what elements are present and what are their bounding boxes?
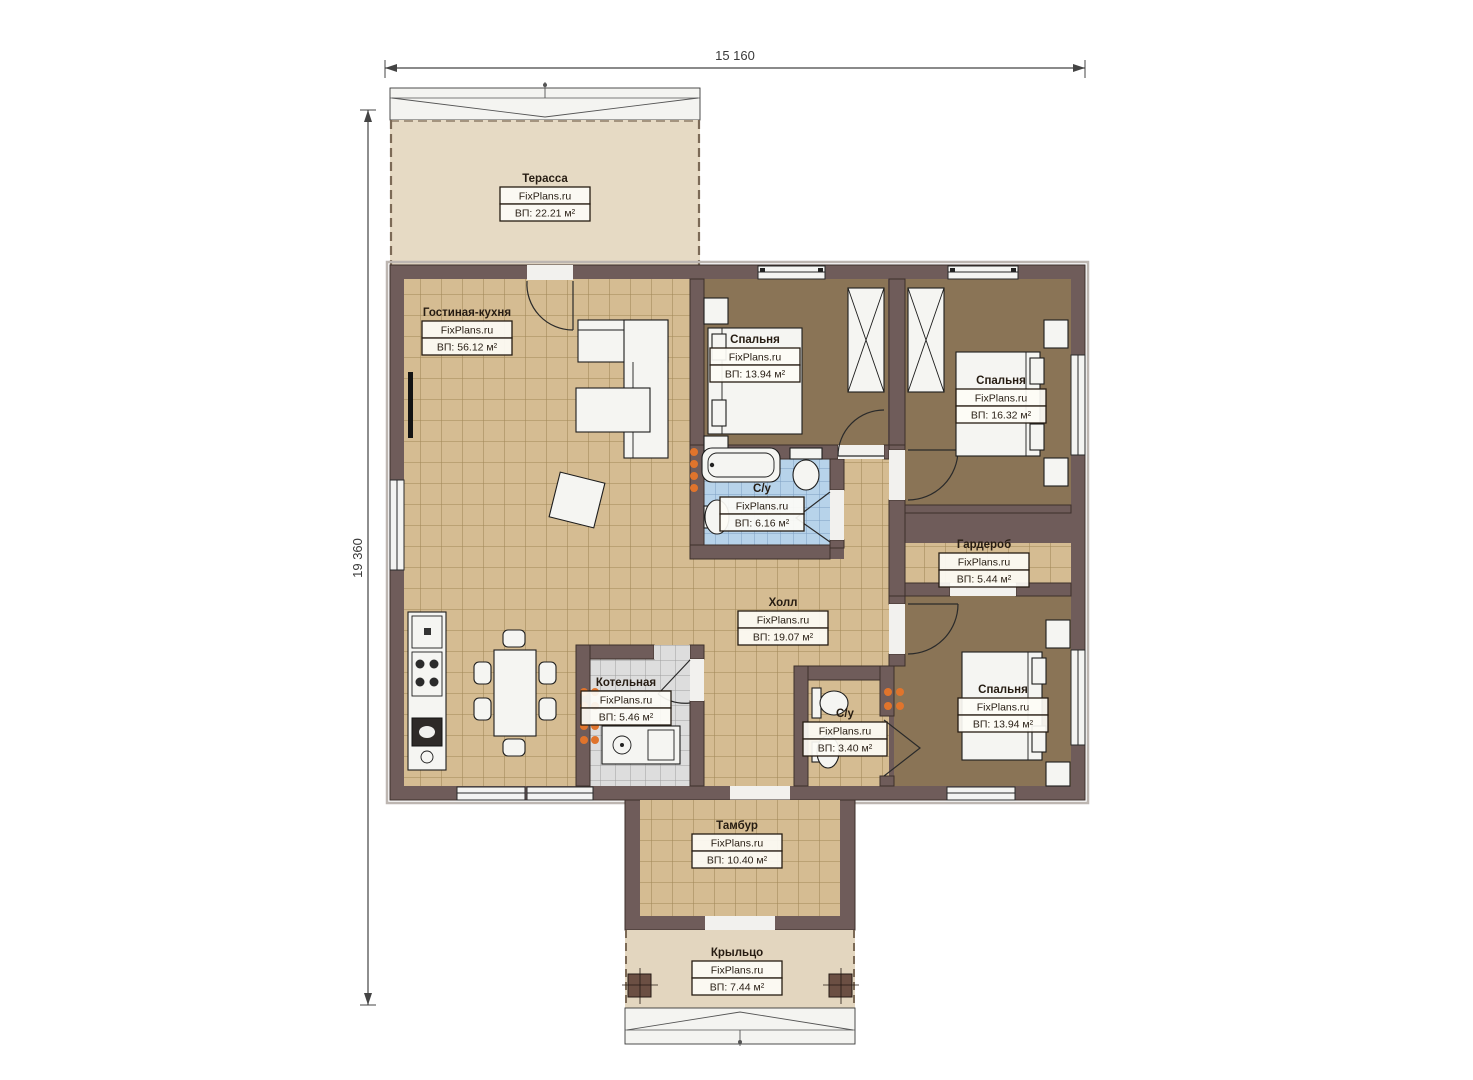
room-watermark: FixPlans.ru [958,557,1011,569]
porch-post [829,974,852,997]
window [948,266,1018,279]
window [947,787,1015,800]
room-watermark: FixPlans.ru [519,191,572,203]
dimension-left: 19 360 [350,110,376,1005]
room-area: ВП: 3.40 м² [818,743,873,755]
floor-plan: 15 160 19 360 [0,0,1473,1080]
room-watermark: FixPlans.ru [711,838,764,850]
room-area: ВП: 13.94 м² [725,369,786,381]
window [758,266,825,279]
bathtub-symbol [702,448,780,482]
window [390,480,404,570]
hall-corridor-floor [844,459,889,559]
floor-plan-page: 15 160 19 360 [0,0,1473,1080]
room-area: ВП: 56.12 м² [437,342,498,354]
boiler-door-gap [654,645,690,659]
room-name: Тамбур [716,820,758,832]
wardrobe-symbol [908,288,944,392]
porch-door-opening [705,916,775,930]
room-name: Котельная [596,677,656,689]
room-area: ВП: 6.16 м² [735,518,790,530]
dimension-height-label: 19 360 [350,538,365,578]
room-area: ВП: 19.07 м² [753,632,814,644]
room-name: Крыльцо [711,947,763,959]
boiler-symbol [602,726,680,764]
dimension-top: 15 160 [385,48,1085,78]
room-area: ВП: 5.46 м² [599,712,654,724]
room-watermark: FixPlans.ru [711,965,764,977]
window [457,787,525,800]
room-watermark: FixPlans.ru [600,695,653,707]
porch-post [628,974,651,997]
room-name: Холл [769,597,798,609]
room-area: ВП: 7.44 м² [710,982,765,994]
window [527,787,593,800]
window [1071,355,1085,455]
room-area: ВП: 10.40 м² [707,855,768,867]
room-watermark: FixPlans.ru [977,702,1030,714]
room-watermark: FixPlans.ru [736,501,789,513]
room-name: Спальня [976,375,1026,387]
room-label-living-kitchen: Гостиная-кухня FixPlans.ru ВП: 56.12 м² [422,307,512,355]
room-name: Терасса [522,173,568,185]
coffee-table-symbol [576,388,650,432]
room-name: С/у [753,483,772,495]
room-watermark: FixPlans.ru [729,352,782,364]
living-hall-passage [690,559,704,645]
room-watermark: FixPlans.ru [441,325,494,337]
toilet-symbol [790,448,822,490]
room-name: С/у [836,708,855,720]
room-watermark: FixPlans.ru [819,726,872,738]
room-area: ВП: 13.94 м² [973,719,1034,731]
room-name: Спальня [978,684,1028,696]
room-watermark: FixPlans.ru [757,615,810,627]
kitchen-counter-symbol [408,612,446,770]
wardrobe-symbol [848,288,884,392]
room-name: Гостиная-кухня [423,307,511,319]
room-area: ВП: 16.32 м² [971,410,1032,422]
dimension-width-label: 15 160 [715,48,755,63]
room-area: ВП: 22.21 м² [515,208,576,220]
window [1071,650,1085,745]
room-area: ВП: 5.44 м² [957,574,1012,586]
room-watermark: FixPlans.ru [975,393,1028,405]
tv-symbol [408,372,413,438]
room-name: Спальня [730,334,780,346]
room-name: Гардероб [957,539,1011,551]
